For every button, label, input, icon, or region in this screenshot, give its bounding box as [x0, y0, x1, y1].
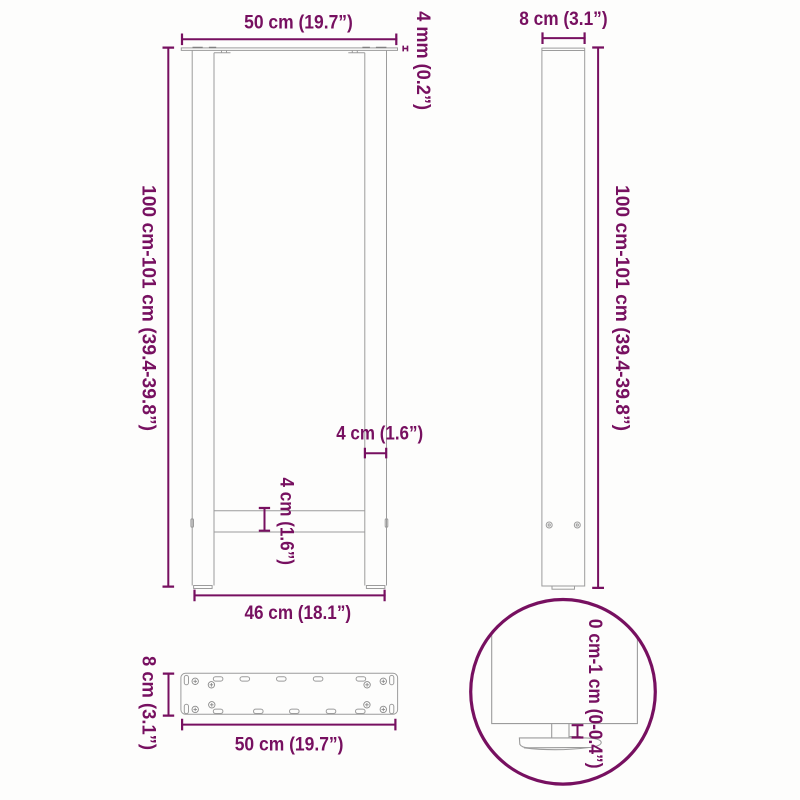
svg-text:50 cm (19.7”): 50 cm (19.7”)	[235, 735, 344, 756]
svg-text:4 cm (1.6”): 4 cm (1.6”)	[276, 477, 297, 565]
svg-text:8 cm (3.1”): 8 cm (3.1”)	[137, 656, 158, 750]
svg-text:8 cm (3.1”): 8 cm (3.1”)	[519, 9, 607, 30]
svg-text:100 cm-101 cm (39.4-39.8”): 100 cm-101 cm (39.4-39.8”)	[138, 185, 159, 431]
svg-text:100 cm-101 cm (39.4-39.8”): 100 cm-101 cm (39.4-39.8”)	[611, 185, 632, 431]
svg-text:0 cm-1 cm (0-0.4”): 0 cm-1 cm (0-0.4”)	[584, 619, 605, 769]
svg-text:4 cm (1.6”): 4 cm (1.6”)	[336, 423, 423, 444]
svg-text:46 cm (18.1”): 46 cm (18.1”)	[245, 603, 352, 624]
svg-text:50 cm (19.7”): 50 cm (19.7”)	[244, 12, 353, 33]
svg-text:4 mm (0.2”): 4 mm (0.2”)	[412, 11, 433, 110]
